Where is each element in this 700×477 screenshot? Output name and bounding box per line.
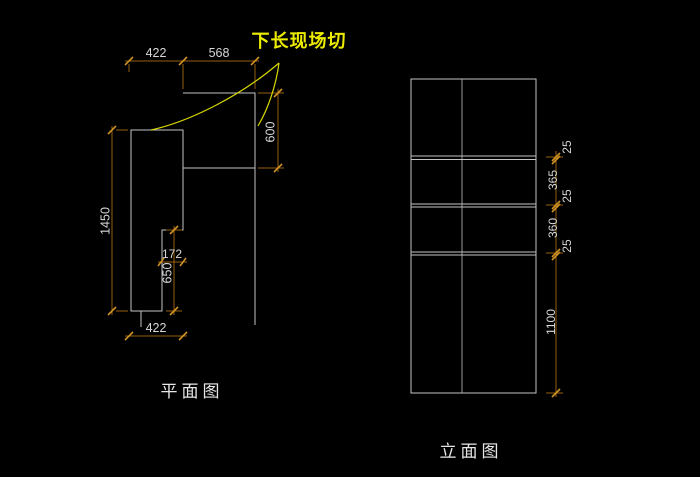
elevation-outline [411,79,536,393]
plan-left-counter-outline [131,130,183,311]
elevation-view: 25 365 25 360 25 1100 立面图 [411,79,574,461]
plan-dim-650: 650 [160,226,182,315]
cad-viewport: 422 568 1450 600 650 [0,0,700,477]
plan-geometry [131,93,255,327]
dim-label-365: 365 [546,170,560,190]
dim-label-25-1: 25 [560,140,574,154]
dim-label-600: 600 [263,122,277,143]
elevation-dim-chain: 25 365 25 360 25 1100 [544,140,574,397]
dim-label-1450: 1450 [98,207,112,235]
plan-dim-bottom: 422 [125,321,187,340]
site-cut-note: 下长现场切 [252,31,347,51]
annotation-leader [151,63,279,130]
dim-label-1100: 1100 [544,309,558,335]
dim-label-650: 650 [160,263,174,284]
plan-dim-left: 1450 [98,126,128,315]
plan-dim-600: 600 [258,89,284,172]
plan-view-title: 平面图 [161,382,224,401]
elevation-geometry [411,79,536,393]
plan-view: 422 568 1450 600 650 [98,46,284,401]
elevation-view-title: 立面图 [440,442,503,461]
dim-label-360: 360 [546,218,560,238]
dim-label-172: 172 [162,247,182,261]
plan-dim-top: 422 568 [125,46,259,89]
dim-label-568: 568 [209,46,230,60]
cad-canvas: 422 568 1450 600 650 [0,0,700,477]
dim-label-422-top: 422 [146,46,167,60]
dim-label-25-3: 25 [560,239,574,253]
dim-label-422-bottom: 422 [146,321,167,335]
dim-label-25-2: 25 [560,189,574,203]
leader-curve-left [151,63,279,130]
